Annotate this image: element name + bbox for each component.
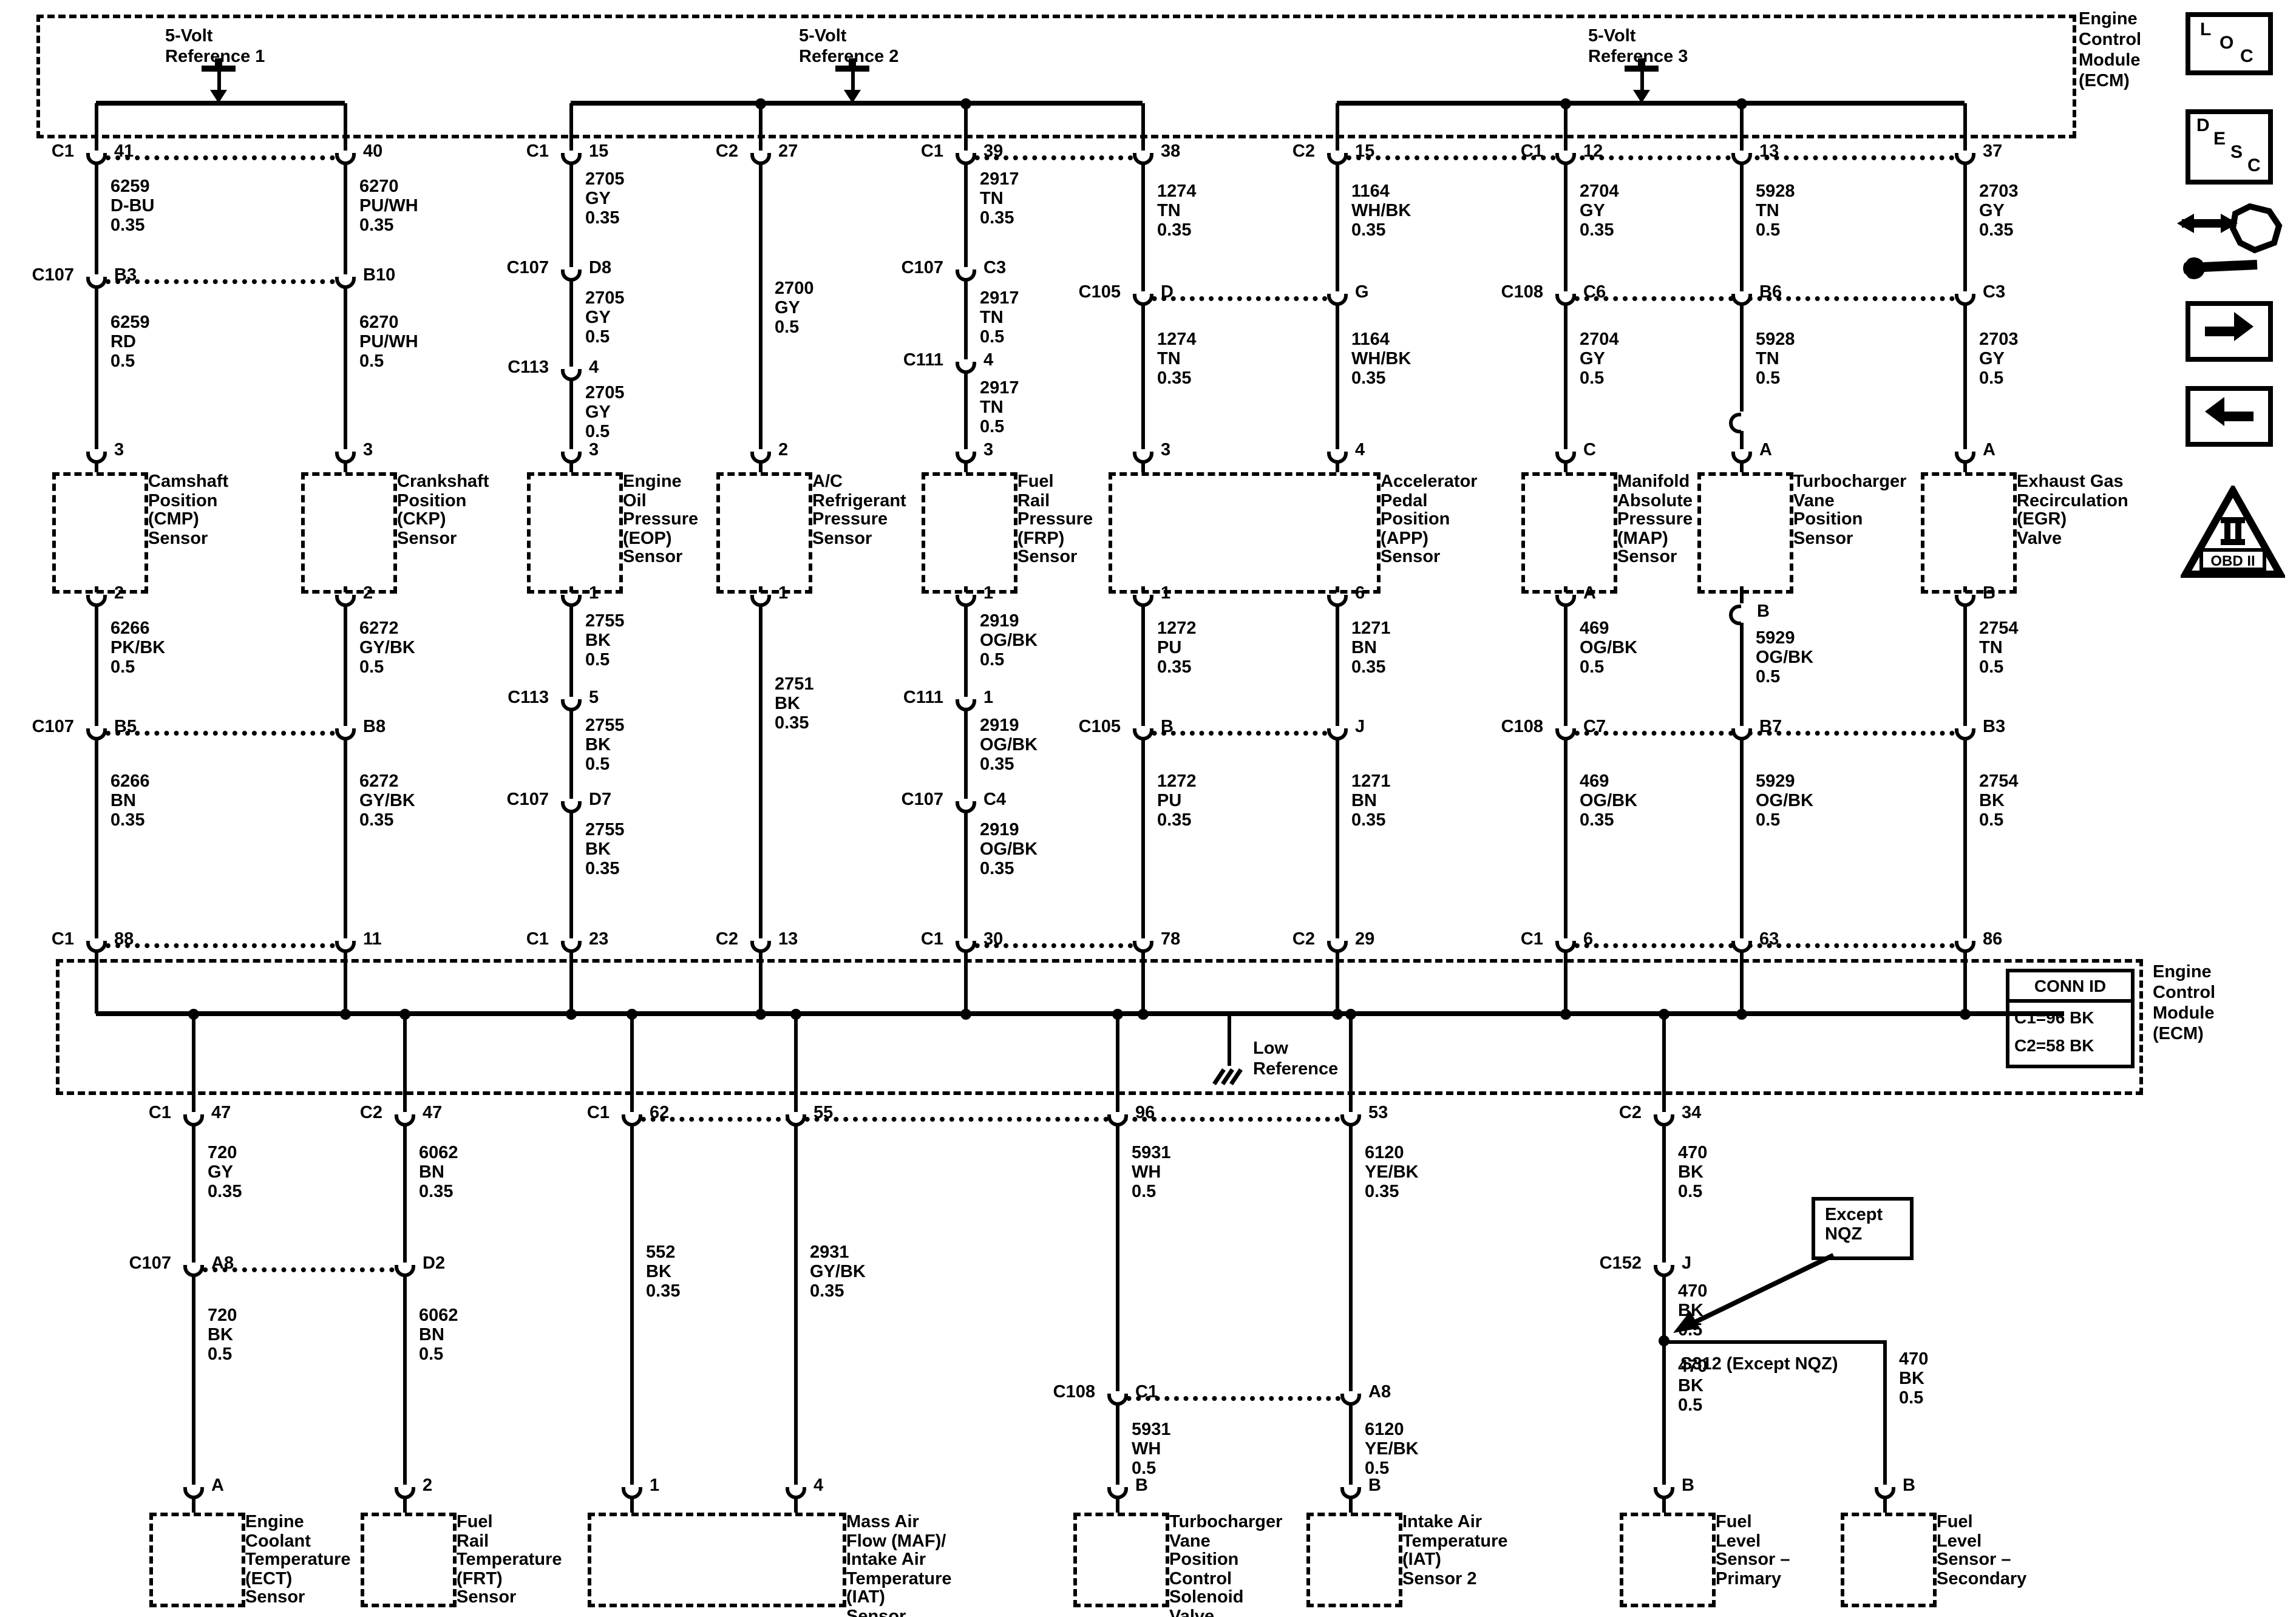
wire-label: 6266 [110, 772, 150, 792]
connector-pin: J [1355, 717, 1365, 737]
wire-label: TN [980, 308, 1004, 328]
wire-segment [1335, 463, 1339, 472]
wire-label: WH [1132, 1163, 1161, 1182]
wire-segment [94, 586, 98, 592]
wire-label: OG/BK [1756, 792, 1813, 811]
connector-terminal [750, 452, 770, 464]
wire-segment [1563, 586, 1567, 592]
connector-pin: 62 [650, 1103, 669, 1123]
wire-label: 0.35 [1157, 221, 1191, 240]
wire-label: TN [980, 189, 1004, 209]
wire-label: BK [775, 694, 800, 714]
wire-label: BK [585, 736, 611, 755]
connector-terminal [1326, 153, 1347, 165]
connector-pin: 23 [589, 930, 608, 949]
wire-segment [569, 164, 572, 267]
connector-pin: 29 [1355, 930, 1374, 949]
component-label: (IAT) [1402, 1551, 1441, 1570]
wire-segment [963, 164, 967, 267]
wire-segment [758, 463, 762, 472]
wire-segment [94, 606, 98, 726]
wire-label: 470 [1899, 1350, 1928, 1369]
loc-letter: L [2200, 19, 2211, 40]
connector-pin: 3 [983, 441, 993, 460]
connector-terminal [955, 452, 976, 464]
connector-pin: B5 [114, 717, 137, 737]
wire-segment [343, 586, 347, 592]
connector-pin: A8 [1368, 1383, 1391, 1402]
connector-terminal [183, 1487, 203, 1499]
connector-terminal [955, 362, 976, 374]
connector-pin: 86 [1983, 930, 2002, 949]
wire-segment [1141, 586, 1144, 592]
component-label: (ECT) [245, 1570, 292, 1588]
component-label: Rail [1017, 492, 1050, 510]
connector-name: C1 [858, 930, 943, 949]
wire-segment [1662, 1498, 1665, 1513]
connector-terminal [1954, 728, 1975, 741]
back-arrow-button[interactable] [2186, 386, 2273, 447]
wire-label: 6259 [110, 313, 150, 333]
component-box-tvp [1697, 472, 1793, 594]
wire-label: 0.5 [1979, 369, 2003, 388]
component-box-ac [716, 472, 812, 594]
forward-arrow-button[interactable] [2186, 301, 2273, 362]
connector-terminal [183, 1114, 203, 1127]
wire-segment [1739, 103, 1743, 151]
wire-segment [1739, 739, 1743, 938]
wire-segment [793, 1498, 797, 1513]
connector-pin: 38 [1161, 142, 1180, 161]
component-label: Manifold [1617, 473, 1690, 492]
wire-label: 720 [208, 1306, 237, 1326]
wire-segment [1739, 586, 1743, 603]
component-label: Secondary [1937, 1570, 2026, 1588]
wire-segment [94, 463, 98, 472]
component-label: Control [1169, 1570, 1232, 1588]
wire-segment [94, 103, 98, 151]
connector-name: C107 [464, 259, 549, 278]
forward-arrow-icon [2205, 327, 2234, 336]
wire-label: GY [1979, 202, 2005, 221]
component-label: (CKP) [397, 511, 446, 529]
connector-terminal [1132, 452, 1153, 464]
connector-terminal [1954, 941, 1975, 953]
connector-pin: 63 [1759, 930, 1779, 949]
connector-pin: A [1759, 441, 1772, 460]
wire-label: 470 [1678, 1357, 1707, 1377]
low-reference-text: Reference [1253, 1060, 1338, 1079]
wire-segment [1141, 952, 1144, 1014]
obd2-badge[interactable]: OBD II [2181, 486, 2285, 580]
wire-label: 0.5 [1979, 811, 2003, 830]
wire-segment [94, 164, 98, 274]
connector-terminal [335, 728, 355, 741]
wire-label: 2755 [585, 716, 625, 736]
connector-pin: 6 [1583, 930, 1593, 949]
connector-name: C1 [464, 142, 549, 161]
connector-terminal [560, 269, 581, 282]
wire-segment [1115, 1498, 1119, 1513]
component-label: Solenoid [1169, 1589, 1243, 1607]
connector-terminal [955, 269, 976, 282]
component-label: Engine [245, 1514, 304, 1532]
wire-break [1729, 605, 1741, 625]
connector-terminal [1954, 595, 1975, 607]
wire-segment [1141, 606, 1144, 726]
component-label: Pressure [1617, 511, 1693, 529]
desc-button[interactable]: D E S C [2186, 109, 2273, 185]
wire-label: GY [1580, 202, 1605, 221]
ecm-bottom-label-line: Control [2153, 983, 2215, 1003]
connector-terminal [86, 728, 106, 741]
component-label: A/C [812, 473, 843, 492]
connector-pin: B [1757, 602, 1770, 622]
connector-name: C113 [464, 358, 549, 378]
connector-name: C108 [1458, 717, 1543, 737]
connector-pin: 1 [650, 1476, 659, 1496]
connector-terminal [86, 277, 106, 289]
connector-pin: 2 [778, 441, 788, 460]
connector-terminal [86, 595, 106, 607]
wire-segment [1963, 164, 1966, 291]
wire-segment [1963, 103, 1966, 151]
wire-label: 720 [208, 1144, 237, 1163]
connector-terminal [750, 595, 770, 607]
connector-name: C1 [0, 142, 74, 161]
connector-pin: 3 [1161, 441, 1170, 460]
wire-label: 470 [1678, 1144, 1707, 1163]
forward-arrow-head [2234, 312, 2254, 341]
connector-pin: D [1161, 283, 1173, 302]
connector-name: C105 [1036, 283, 1121, 302]
component-label: Sensor [397, 530, 457, 548]
wire-segment [1963, 952, 1966, 1014]
wire-label: GY [585, 189, 611, 209]
connector-pin: B [1368, 1476, 1381, 1496]
wire-label: 6266 [110, 619, 150, 639]
component-label: Accelerator [1381, 473, 1478, 492]
connector-terminal [1340, 1487, 1360, 1499]
connector-pin: C3 [983, 259, 1006, 278]
component-label: Sensor [457, 1589, 516, 1607]
wire-label: 0.35 [1979, 221, 2013, 240]
wire-label: 2704 [1580, 182, 1619, 202]
wire-label: 2754 [1979, 772, 2019, 792]
wire-segment [630, 1125, 633, 1485]
connector-pin: 47 [423, 1103, 442, 1123]
connector-terminal [1555, 294, 1575, 306]
desc-letter: C [2247, 155, 2261, 176]
wire-label: 0.5 [1132, 1182, 1156, 1202]
wire-segment [1335, 606, 1339, 726]
connector-terminal [1731, 941, 1751, 953]
component-label: Valve [1169, 1608, 1214, 1617]
connector-pin: D2 [423, 1254, 445, 1273]
wire-label: 0.5 [980, 328, 1004, 347]
connector-pin: B6 [1759, 283, 1782, 302]
wire-label: BK [1678, 1301, 1703, 1321]
component-label: (EGR) [2017, 511, 2067, 529]
connector-pin: 13 [1759, 142, 1779, 161]
component-label: Intake Air [1402, 1514, 1482, 1532]
wire-segment [569, 380, 572, 449]
connector-terminal [1954, 294, 1975, 306]
component-box-app [1109, 472, 1381, 594]
wire-label: 2703 [1979, 330, 2019, 350]
wire-label: 0.35 [1157, 369, 1191, 388]
ecm-bottom-label-line: Module [2153, 1004, 2215, 1023]
connector-name: C1 [1458, 142, 1543, 161]
connector-name: C108 [1010, 1383, 1095, 1402]
connector-pin: B [1903, 1476, 1915, 1496]
wire-segment [963, 710, 967, 799]
ground-icon [1211, 1063, 1245, 1088]
component-box-fls [1841, 1513, 1937, 1607]
connector-pin: C6 [1583, 283, 1606, 302]
connector-terminal [1954, 452, 1975, 464]
wire-label: D-BU [110, 197, 155, 216]
back-arrow-icon [2224, 412, 2254, 421]
loc-button[interactable]: L O C [2186, 12, 2273, 75]
wire-label: BN [419, 1326, 444, 1345]
wire-segment [1115, 1014, 1119, 1112]
connector-pin: 2 [114, 584, 124, 603]
connector-name: C1 [525, 1103, 610, 1123]
connector-terminal [86, 941, 106, 953]
wire-label: PU [1157, 639, 1181, 658]
back-arrow-head [2205, 397, 2224, 426]
wire-label: PU [1157, 792, 1181, 811]
connector-pin: 47 [211, 1103, 231, 1123]
wire-label: 0.35 [359, 811, 393, 830]
wire-segment [402, 1014, 406, 1112]
connector-pin: B [1161, 717, 1173, 737]
wire-label: 0.35 [1580, 221, 1614, 240]
connector-terminal [1326, 728, 1347, 741]
component-label: Level [1716, 1533, 1761, 1551]
component-label: Rail [457, 1533, 489, 1551]
component-label: Position [148, 492, 217, 510]
connector-terminal [955, 595, 976, 607]
ecm-bottom-label-line: Engine [2153, 963, 2212, 982]
connector-pin: 1 [983, 584, 993, 603]
connector-pin: 4 [1355, 441, 1365, 460]
connector-terminal [785, 1487, 806, 1499]
connector-name: C1 [0, 930, 74, 949]
loc-letter: O [2220, 33, 2233, 53]
wire-segment [1739, 164, 1743, 291]
connector-terminal [1555, 728, 1575, 741]
wire-label: 0.5 [208, 1345, 232, 1364]
connector-pin: 5 [589, 688, 599, 708]
component-label: Flow (MAF)/ [846, 1533, 946, 1551]
component-label: Position [1793, 511, 1863, 529]
wire-label: 0.35 [419, 1182, 453, 1202]
wire-segment [963, 463, 967, 472]
connector-terminal [621, 1114, 642, 1127]
wire-segment [1963, 586, 1966, 592]
wire-label: 0.35 [646, 1282, 680, 1301]
connector-terminal [1132, 595, 1153, 607]
component-label: Fuel [1937, 1514, 1973, 1532]
wire-label: OG/BK [980, 736, 1038, 755]
connector-terminal [1107, 1487, 1127, 1499]
wire-label: BN [110, 792, 136, 811]
wire-label: GY/BK [359, 639, 415, 658]
wire-segment [1662, 1014, 1665, 1112]
component-label: Sensor [1793, 530, 1853, 548]
wire-segment [1115, 1405, 1119, 1485]
component-label: Level [1937, 1533, 1982, 1551]
wire-label: GY [585, 403, 611, 422]
ecm-bottom-label-line: (ECM) [2153, 1025, 2204, 1044]
component-label: Turbocharger [1793, 473, 1906, 492]
wire-label: 0.35 [1157, 658, 1191, 677]
wire-label: 6270 [359, 313, 399, 333]
wire-segment [963, 586, 967, 592]
component-label: Recirculation [2017, 492, 2128, 510]
ecm-bottom-box [56, 959, 2143, 1095]
wire-label: 0.5 [1580, 658, 1604, 677]
wire-label: 2917 [980, 289, 1019, 308]
ecm-top-box [36, 15, 2076, 138]
connector-pin: B [1983, 584, 1995, 603]
connector-pin: 4 [813, 1476, 823, 1496]
wire-segment [343, 952, 347, 1014]
connector-terminal [1340, 1114, 1360, 1127]
connector-pin: D8 [589, 259, 611, 278]
wire-label: 470 [1678, 1282, 1707, 1301]
wire-segment [1563, 103, 1567, 151]
component-label: (IAT) [846, 1589, 885, 1607]
ref-label: Reference 1 [165, 47, 265, 67]
connector-pin: 12 [1583, 142, 1603, 161]
wire-break [1729, 413, 1741, 433]
component-label: Refrigerant [812, 492, 906, 510]
wire-label: 0.35 [110, 811, 144, 830]
connector-name: C1 [1458, 930, 1543, 949]
component-label: Fuel [1017, 473, 1054, 492]
wire-label: 0.5 [585, 651, 610, 670]
wire-segment [1662, 1276, 1665, 1485]
connector-terminal [560, 595, 581, 607]
wire-label: 0.5 [1756, 668, 1780, 687]
wire-label: 0.35 [980, 859, 1014, 879]
connector-terminal [1555, 153, 1575, 165]
wire-segment [1739, 623, 1743, 726]
connector-pin: B [1135, 1476, 1148, 1496]
wire-segment [1963, 305, 1966, 449]
component-label: Sensor [1381, 549, 1440, 567]
connector-pin: B [1682, 1476, 1694, 1496]
ref-label: Reference 3 [1588, 47, 1688, 67]
wire-segment [569, 606, 572, 697]
connector-terminal [1954, 153, 1975, 165]
wire-segment [1963, 463, 1966, 472]
component-label: Temperature [846, 1570, 952, 1588]
wire-label: 0.35 [1351, 811, 1385, 830]
connector-pin: G [1355, 283, 1369, 302]
wire-label: GY/BK [359, 792, 415, 811]
wrench-vehicle-icon[interactable] [2177, 202, 2284, 286]
wire-label: GY [208, 1163, 233, 1182]
wire-label: 552 [646, 1243, 675, 1263]
wire-segment [569, 280, 572, 367]
connector-terminal [1132, 153, 1153, 165]
wire-label: 0.35 [585, 859, 619, 879]
connector-name: C107 [0, 266, 74, 285]
wire-label: BN [1351, 792, 1377, 811]
connector-name: C2 [1557, 1103, 1642, 1123]
component-label: Mass Air [846, 1514, 919, 1532]
wire-label: GY [775, 299, 800, 318]
wire-label: 5931 [1132, 1420, 1171, 1440]
wire-label: 0.35 [1580, 811, 1614, 830]
wire-segment [343, 606, 347, 726]
component-label: Turbocharger [1169, 1514, 1282, 1532]
wire-label: 5929 [1756, 772, 1795, 792]
connector-name: C1 [464, 930, 549, 949]
ref-label: 5-Volt [1588, 27, 1635, 46]
wire-label: 0.5 [1678, 1396, 1702, 1415]
wire-segment [1141, 164, 1144, 291]
connector-terminal [1326, 941, 1347, 953]
connector-pin: 4 [983, 351, 993, 370]
wire-label: 1271 [1351, 772, 1391, 792]
wire-segment [1227, 1014, 1231, 1066]
connector-terminal [394, 1114, 415, 1127]
component-label: Temperature [457, 1551, 562, 1570]
connector-name: C111 [858, 351, 943, 370]
connector-name: C2 [1230, 142, 1315, 161]
connector-pin: C4 [983, 790, 1006, 810]
wire-segment [963, 606, 967, 697]
connector-pin: 3 [114, 441, 124, 460]
wire-segment [1563, 305, 1567, 449]
wire-label: WH/BK [1351, 202, 1411, 221]
connector-pin: A [1583, 584, 1596, 603]
connector-pin: 39 [983, 142, 1003, 161]
wire-label: 5929 [1756, 629, 1795, 648]
wire-segment [1883, 1498, 1886, 1513]
wire-segment [1115, 1125, 1119, 1391]
connector-name: C111 [858, 688, 943, 708]
connector-terminal [1555, 452, 1575, 464]
wire-label: OG/BK [980, 631, 1038, 651]
wire-segment [630, 1014, 633, 1112]
wire-label: TN [1979, 639, 2003, 658]
component-label: Vane [1793, 492, 1835, 510]
connector-name: C107 [86, 1254, 171, 1273]
connector-name: C107 [858, 790, 943, 810]
wire-label: TN [1157, 202, 1181, 221]
component-label: Valve [2017, 530, 2062, 548]
wire-label: 0.35 [110, 216, 144, 236]
ecm-top-label-line: Control [2079, 30, 2141, 50]
component-label: Temperature [245, 1551, 351, 1570]
component-label: (FRP) [1017, 530, 1064, 548]
connector-pin: 27 [778, 142, 798, 161]
wire-segment [1141, 103, 1144, 151]
wire-label: 2751 [775, 675, 814, 694]
except-nqz-text: Except [1825, 1205, 1920, 1225]
wire-label: 1164 [1351, 182, 1390, 202]
wire-label: 2703 [1979, 182, 2019, 202]
wire-label: TN [1157, 350, 1181, 369]
connector-pin: 55 [813, 1103, 833, 1123]
wire-label: 2919 [980, 612, 1019, 631]
